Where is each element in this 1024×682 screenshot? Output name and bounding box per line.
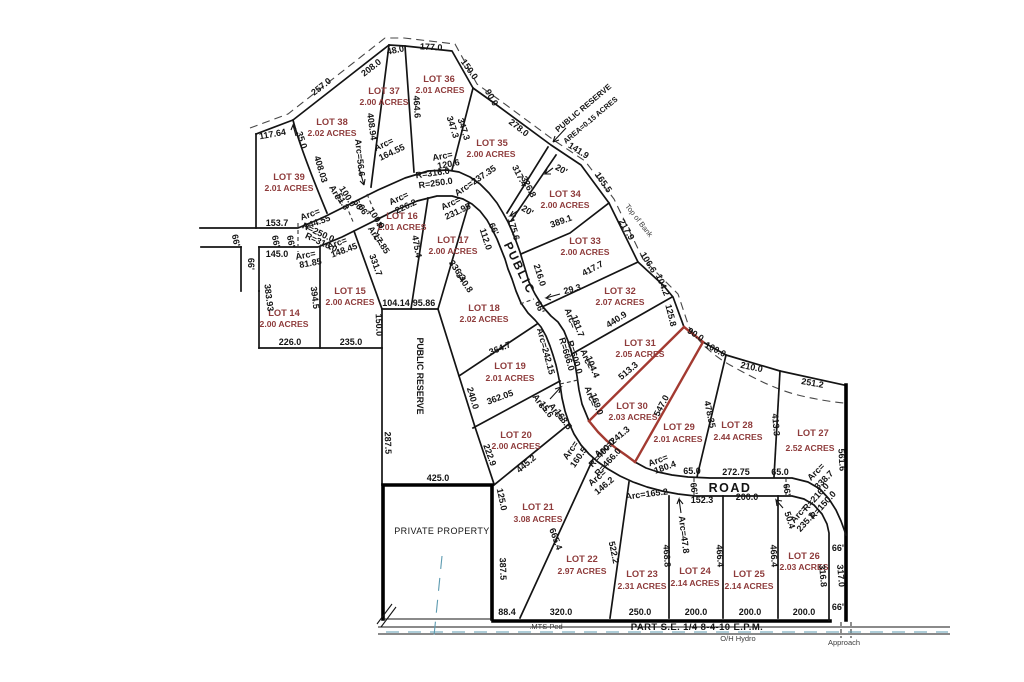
svg-text:LOT 32: LOT 32 (604, 286, 636, 296)
svg-text:.MTS Ped: .MTS Ped (529, 622, 562, 631)
svg-text:66': 66' (246, 258, 256, 270)
svg-text:2.44 ACRES: 2.44 ACRES (714, 432, 763, 442)
svg-text:88.4: 88.4 (498, 607, 516, 617)
svg-text:2.52 ACRES: 2.52 ACRES (786, 443, 835, 453)
svg-text:200.0: 200.0 (793, 607, 816, 617)
svg-text:200.0: 200.0 (685, 607, 708, 617)
svg-text:LOT 17: LOT 17 (437, 235, 469, 245)
svg-text:200.0: 200.0 (739, 607, 762, 617)
svg-text:2.07 ACRES: 2.07 ACRES (596, 297, 645, 307)
svg-text:466.4: 466.4 (768, 544, 779, 567)
svg-text:320.0: 320.0 (550, 607, 573, 617)
svg-text:2.01 ACRES: 2.01 ACRES (265, 183, 314, 193)
svg-text:387.5: 387.5 (498, 557, 509, 580)
svg-text:2.00 ACRES: 2.00 ACRES (326, 297, 375, 307)
svg-text:O/H Hydro: O/H Hydro (720, 634, 755, 643)
svg-text:561.6: 561.6 (836, 448, 847, 471)
svg-text:104.14: 104.14 (382, 298, 410, 308)
svg-text:LOT 33: LOT 33 (569, 236, 601, 246)
svg-text:Approach: Approach (828, 638, 860, 647)
svg-text:2.97 ACRES: 2.97 ACRES (558, 566, 607, 576)
svg-text:LOT 20: LOT 20 (500, 430, 532, 440)
svg-text:LOT 36: LOT 36 (423, 74, 455, 84)
svg-text:LOT 31: LOT 31 (624, 338, 656, 348)
svg-text:LOT 23: LOT 23 (626, 569, 658, 579)
svg-text:LOT 35: LOT 35 (476, 138, 508, 148)
svg-text:LOT 18: LOT 18 (468, 303, 500, 313)
svg-text:2.01 ACRES: 2.01 ACRES (416, 85, 465, 95)
svg-text:2.14 ACRES: 2.14 ACRES (671, 578, 720, 588)
svg-text:LOT 19: LOT 19 (494, 361, 526, 371)
svg-text:464.6: 464.6 (411, 95, 422, 118)
svg-text:468.8: 468.8 (661, 544, 672, 567)
svg-text:2.00 ACRES: 2.00 ACRES (467, 149, 516, 159)
svg-text:177.0: 177.0 (420, 41, 443, 52)
svg-text:2.00 ACRES: 2.00 ACRES (492, 441, 541, 451)
svg-text:95.86: 95.86 (413, 298, 436, 308)
svg-text:316.8: 316.8 (817, 564, 829, 587)
svg-text:LOT 26: LOT 26 (788, 551, 820, 561)
svg-text:317.0: 317.0 (835, 564, 847, 587)
svg-text:LOT 21: LOT 21 (522, 502, 554, 512)
svg-text:272.75: 272.75 (722, 467, 750, 477)
svg-text:LOT 15: LOT 15 (334, 286, 366, 296)
svg-text:LOT 25: LOT 25 (733, 569, 765, 579)
svg-text:LOT 29: LOT 29 (663, 422, 695, 432)
svg-text:413.3: 413.3 (770, 413, 782, 436)
svg-text:PUBLIC RESERVE: PUBLIC RESERVE (415, 337, 425, 414)
svg-text:66': 66' (832, 602, 844, 612)
svg-text:2.00 ACRES: 2.00 ACRES (260, 319, 309, 329)
svg-text:2.05 ACRES: 2.05 ACRES (616, 349, 665, 359)
svg-text:2.14 ACRES: 2.14 ACRES (725, 581, 774, 591)
svg-text:LOT 22: LOT 22 (566, 554, 598, 564)
svg-text:LOT 30: LOT 30 (616, 401, 648, 411)
svg-text:LOT 37: LOT 37 (368, 86, 400, 96)
svg-text:3.08 ACRES: 3.08 ACRES (514, 514, 563, 524)
svg-text:2.31 ACRES: 2.31 ACRES (618, 581, 667, 591)
svg-text:2.02 ACRES: 2.02 ACRES (460, 314, 509, 324)
svg-text:LOT 34: LOT 34 (549, 189, 581, 199)
svg-text:466.4: 466.4 (714, 544, 725, 567)
svg-text:152.3: 152.3 (691, 495, 714, 505)
svg-text:LOT 24: LOT 24 (679, 566, 711, 576)
svg-text:LOT 38: LOT 38 (316, 117, 348, 127)
svg-text:250.0: 250.0 (629, 607, 652, 617)
svg-text:2.00 ACRES: 2.00 ACRES (429, 246, 478, 256)
svg-text:65.0: 65.0 (771, 467, 789, 477)
svg-text:2.01 ACRES: 2.01 ACRES (486, 373, 535, 383)
svg-text:287.5: 287.5 (383, 431, 394, 454)
svg-text:226.0: 226.0 (279, 337, 302, 347)
svg-text:2.00 ACRES: 2.00 ACRES (541, 200, 590, 210)
svg-text:LOT 39: LOT 39 (273, 172, 305, 182)
svg-text:LOT 27: LOT 27 (797, 428, 829, 438)
svg-text:425.0: 425.0 (427, 473, 450, 483)
svg-text:66': 66' (688, 482, 699, 495)
svg-text:150.0: 150.0 (374, 313, 385, 336)
svg-text:2.03 ACRES: 2.03 ACRES (609, 412, 658, 422)
svg-text:200.0: 200.0 (736, 492, 759, 502)
svg-text:PRIVATE PROPERTY: PRIVATE PROPERTY (394, 526, 489, 536)
svg-text:235.0: 235.0 (340, 337, 363, 347)
svg-text:LOT 28: LOT 28 (721, 420, 753, 430)
svg-text:2.00 ACRES: 2.00 ACRES (561, 247, 610, 257)
svg-text:2.00 ACRES: 2.00 ACRES (360, 97, 409, 107)
svg-text:66': 66' (832, 543, 844, 553)
svg-text:2.01 ACRES: 2.01 ACRES (654, 434, 703, 444)
svg-text:2.02 ACRES: 2.02 ACRES (308, 128, 357, 138)
svg-text:153.7: 153.7 (266, 218, 289, 228)
svg-text:145.0: 145.0 (266, 249, 289, 259)
svg-text:65.0: 65.0 (683, 466, 701, 476)
svg-text:66': 66' (781, 483, 792, 496)
svg-text:PART S.E. 1/4 8-4-10 E.P.M.: PART S.E. 1/4 8-4-10 E.P.M. (631, 622, 763, 633)
